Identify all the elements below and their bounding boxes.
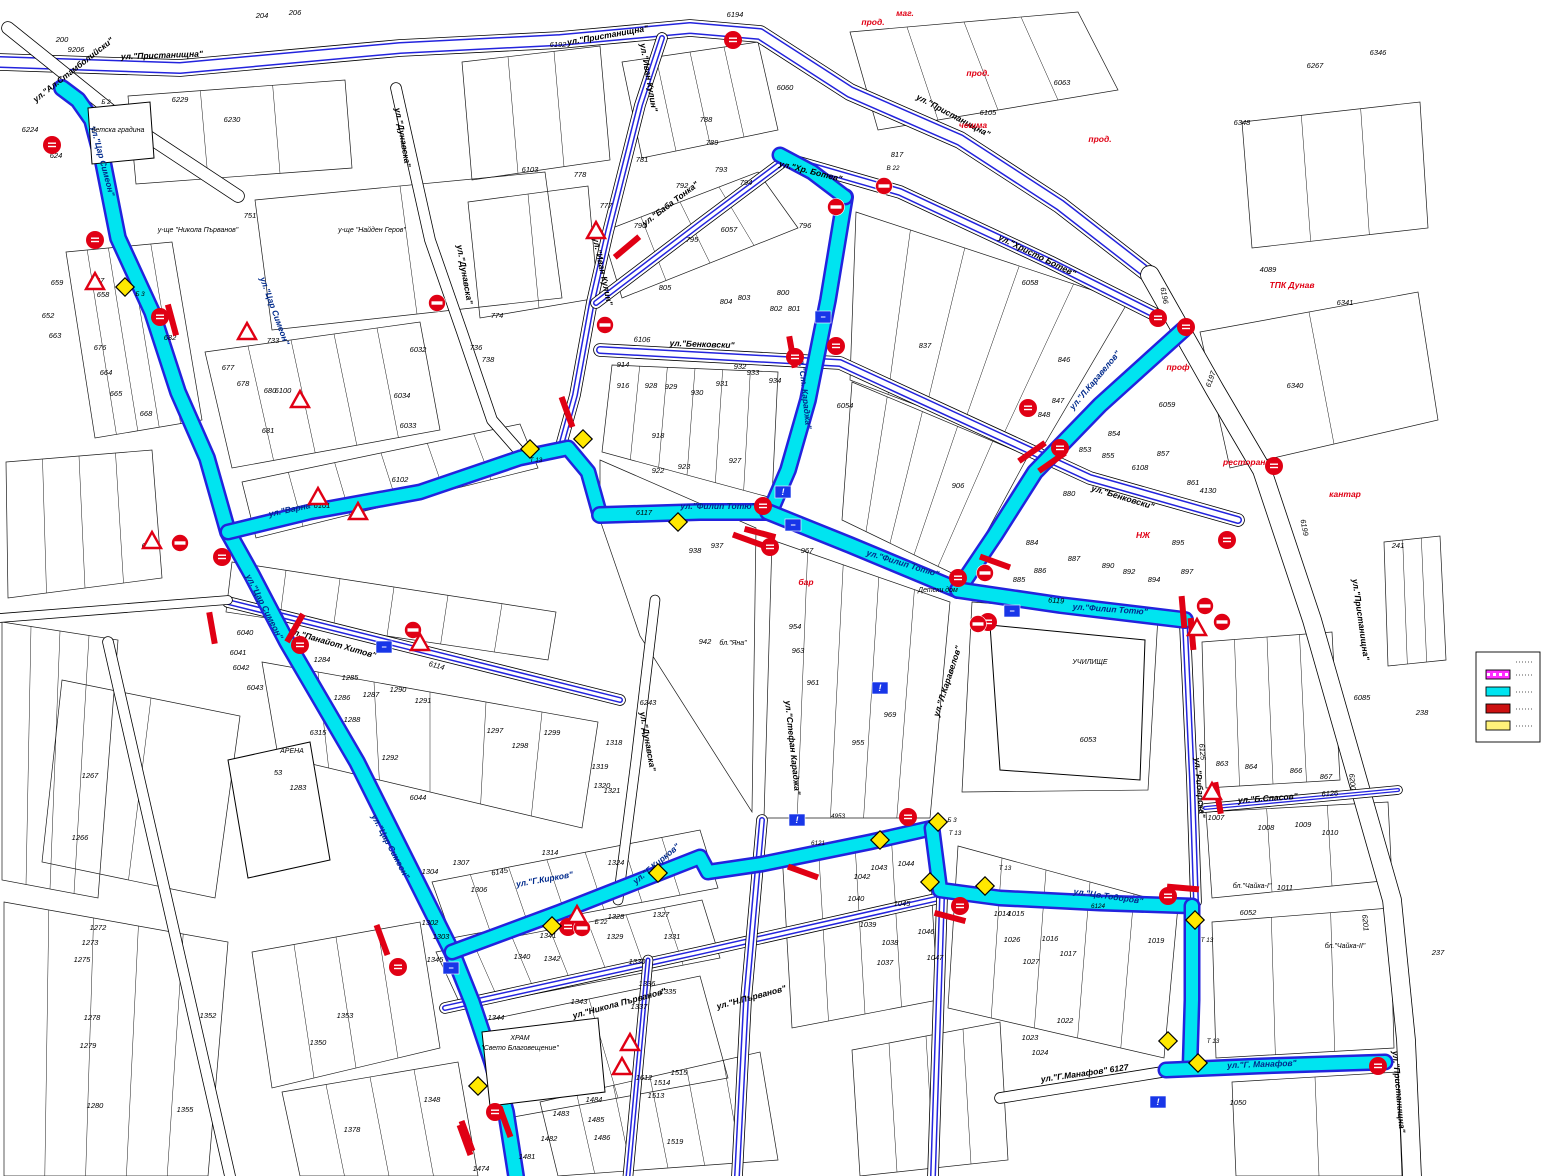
parcel-number: 894 (1148, 575, 1161, 584)
parcel-number: 1026 (1004, 935, 1022, 944)
parcel-number: 942 (699, 637, 712, 646)
parcel-number: 1485 (588, 1115, 606, 1124)
parcel-number: 1519 (667, 1137, 685, 1146)
parcel-number: 6108 (1132, 463, 1150, 472)
parcel-number: 934 (769, 376, 782, 385)
parcel-number: 804 (720, 297, 733, 306)
parcel-number: 817 (891, 150, 904, 159)
red-sign-marker-icon (827, 337, 845, 355)
red-sign-marker-icon (786, 348, 804, 366)
parcel-number: 1513 (648, 1091, 666, 1100)
parcel-number: 1043 (871, 863, 889, 872)
parcel-number: 788 (700, 115, 713, 124)
parcel-number: 736 (470, 343, 483, 352)
parcel-number: 658 (97, 290, 110, 299)
parcel-number: 885 (1013, 575, 1026, 584)
red-sign-marker-icon (291, 636, 309, 654)
parcel-number: 1045 (894, 899, 912, 908)
parcel-number: 6201 (1360, 914, 1370, 931)
parcel-number: 1343 (571, 997, 589, 1006)
route-ul-ribarska-s (1190, 906, 1192, 1066)
parcel-number: 781 (636, 155, 649, 164)
parcel-number: 1297 (487, 726, 505, 735)
annotation-label: бл."Чайка-II" (1325, 942, 1366, 950)
red-sign-marker-icon (1265, 457, 1283, 475)
parcel-number: 6103 (522, 165, 540, 174)
parcel-number: Б 22 (595, 919, 608, 926)
svg-text:−: − (448, 963, 454, 973)
parcel-number: 1329 (607, 932, 625, 941)
parcel-number: 802 (770, 304, 783, 313)
parcel-number: 1022 (1057, 1016, 1075, 1025)
red-sign-marker-icon (151, 308, 169, 326)
parcel-number: 864 (1245, 762, 1258, 771)
parcel-number: 1299 (544, 728, 562, 737)
parcel-number: 855 (1102, 451, 1115, 460)
poi-label: маг. (896, 8, 914, 18)
parcel-number: 1327 (653, 910, 671, 919)
parcel-number: 927 (729, 456, 742, 465)
parcel-number: 1278 (84, 1013, 102, 1022)
red-sign-marker-icon (486, 1103, 504, 1121)
parcel-block (282, 1062, 478, 1176)
parcel-number: 929 (665, 382, 678, 391)
parcel-number: 1318 (606, 738, 624, 747)
parcel-number: 1342 (544, 954, 562, 963)
parcel-number: 847 (1052, 396, 1065, 405)
parcel-number: 774 (491, 311, 504, 320)
parcel-number: 738 (482, 355, 495, 364)
parcel-number: 6033 (400, 421, 418, 430)
parcel-number: 1306 (471, 885, 489, 894)
warning-triangle-icon (587, 222, 605, 238)
parcel-number: 916 (617, 381, 630, 390)
parcel-number: 6043 (247, 683, 265, 692)
parcel-number: 886 (1034, 566, 1047, 575)
parcel-number: 6145 (491, 866, 510, 878)
street-label: ул."Филип Тотю" (679, 501, 756, 511)
parcel-number: 6059 (1159, 400, 1177, 409)
parcel-number: 954 (789, 622, 802, 631)
parcel-number: 803 (738, 293, 751, 302)
parcel-number: 1275 (74, 955, 92, 964)
parcel-number: 4953 (831, 813, 846, 820)
poi-label: кантар (1329, 489, 1361, 499)
parcel-number: 664 (100, 368, 113, 377)
red-sign-marker-icon (1218, 531, 1236, 549)
parcel-number: 6105 (980, 108, 998, 117)
parcel-number: 1324 (608, 858, 625, 867)
annotation-label: "Свето Благовещение" (481, 1045, 559, 1052)
parcel-block (252, 922, 440, 1088)
parcel-block (1242, 102, 1428, 248)
warning-triangle-icon (309, 488, 327, 504)
parcel-number: 1348 (424, 1095, 442, 1104)
parcel-number: Т 13 (949, 830, 962, 837)
parcel-number: 928 (645, 381, 658, 390)
parcel-number: 241 (1391, 541, 1405, 550)
parcel-number: 4130 (1200, 486, 1218, 495)
parcel-number: 1011 (1277, 883, 1293, 892)
parcel-number: 1331 (664, 932, 681, 941)
poi-label: прод. (1088, 134, 1111, 144)
parcel-number: 6126 (1321, 788, 1339, 798)
parcel-number: 6040 (237, 628, 255, 637)
parcel-number: 1273 (82, 938, 100, 947)
svg-text:−: − (820, 312, 826, 322)
parcel-number: 659 (51, 278, 64, 287)
parcel-number: 796 (799, 221, 812, 230)
svg-text:!: ! (782, 487, 785, 497)
road-closure-bar (613, 234, 641, 259)
annotation-label: у-ще "Никола Първанов" (157, 227, 239, 234)
parcel-number: Б 3 (947, 817, 957, 824)
parcel-block (462, 46, 610, 180)
priority-diamond-icon (469, 1077, 487, 1095)
red-sign-marker-icon (1051, 439, 1069, 457)
red-sign-marker-icon (951, 897, 969, 915)
svg-text:!: ! (796, 815, 799, 825)
parcel-number: 955 (852, 738, 865, 747)
parcel-number: 1321 (604, 786, 621, 795)
parcel-number: 854 (1108, 429, 1121, 438)
parcel-number: 663 (49, 331, 62, 340)
parcel-number: 6044 (410, 793, 427, 802)
parcel-number: 1337 (631, 1002, 649, 1011)
parcel-number: 1474 (473, 1164, 490, 1173)
parcel-number: 1304 (422, 867, 439, 876)
parcel-number: 923 (678, 462, 691, 471)
parcel-number: 1481 (519, 1152, 536, 1161)
parcel-number: 795 (686, 235, 699, 244)
poi-label: ТПК Дунав (1270, 280, 1315, 290)
parcel-number: 6194 (727, 10, 744, 19)
parcel-number: 1355 (177, 1105, 195, 1114)
parcel-number: 1284 (314, 655, 331, 664)
parcel-number: 880 (1063, 489, 1076, 498)
parcel-number: 794 (740, 178, 753, 187)
parcel-number: 1314 (542, 848, 559, 857)
parcel-number: 846 (1058, 355, 1071, 364)
legend-swatch-cyan (1486, 687, 1510, 696)
red-sign-marker-icon (724, 31, 742, 49)
street-label: ул."Дунавска" (455, 243, 476, 306)
poi-label: чешма (959, 120, 988, 130)
warning-triangle-icon (291, 391, 309, 407)
parcel-number: 930 (691, 388, 704, 397)
parcel-number: 6230 (224, 115, 242, 124)
parcel-number: 777 (600, 201, 613, 210)
annotation-label: ХРАМ (509, 1035, 529, 1042)
parcel-number: 678 (237, 379, 250, 388)
parcel-number: 1266 (72, 833, 90, 842)
red-sign-marker-icon (1159, 887, 1177, 905)
red-sign-marker-icon (1149, 309, 1167, 327)
parcel-number: 1019 (1148, 936, 1166, 945)
svg-text:−: − (1009, 606, 1015, 616)
legend (1476, 652, 1540, 742)
parcel-number: 933 (747, 368, 760, 377)
parcel-number: 6032 (410, 345, 428, 354)
parcel-number: 6340 (1287, 381, 1305, 390)
parcel-number: 1319 (592, 762, 610, 771)
parcel-number: 931 (716, 379, 729, 388)
svg-text:!: ! (1157, 1097, 1160, 1107)
parcel-number: 789 (706, 138, 719, 147)
parcel-number: 6052 (1240, 908, 1258, 917)
parcel-number: 1292 (382, 753, 400, 762)
parcel-number: 204 (255, 11, 269, 20)
parcel-number: 1345 (427, 955, 445, 964)
legend-swatch-yellow (1486, 721, 1510, 730)
parcel-number: 6058 (1022, 278, 1040, 287)
parcel-number: 1279 (80, 1041, 98, 1050)
parcel-number: 961 (807, 678, 820, 687)
parcel-number: 6085 (1354, 693, 1372, 702)
parcel-number: 1486 (594, 1133, 612, 1142)
parcel-number: 1328 (608, 912, 626, 921)
annotation-label: у-ще "Найден Геров" (337, 226, 406, 234)
parcel-number: 884 (1026, 538, 1039, 547)
poi-label: НЖ (1136, 530, 1151, 540)
parcel-number: 1484 (586, 1095, 603, 1104)
parcel-number: 751 (244, 211, 257, 220)
parcel-number: 6267 (1307, 61, 1325, 70)
parcel-number: 1008 (1258, 823, 1276, 832)
parcel-number: 1515 (671, 1068, 689, 1077)
parcel-number: 665 (110, 389, 123, 398)
parcel-number: 1010 (1322, 828, 1340, 837)
parcel-number: 1285 (342, 673, 360, 682)
parcel-number: 1038 (882, 938, 900, 947)
parcel-number: 848 (1038, 410, 1051, 419)
street-label: ул."Баба Тонка" (639, 179, 701, 229)
parcel-number: 1044 (898, 859, 915, 868)
parcel-number: 1046 (918, 927, 936, 936)
parcel-number: 1307 (453, 858, 471, 867)
red-sign-marker-icon (1369, 1057, 1387, 1075)
parcel-number: 863 (1216, 759, 1229, 768)
parcel-number: 1514 (654, 1078, 671, 1087)
parcel-block (128, 80, 352, 184)
parcel-number: 1290 (390, 685, 408, 694)
parcel-number: 1483 (553, 1109, 571, 1118)
street-label: ул."Пристанищна" (1350, 577, 1372, 662)
warning-triangle-icon (613, 1058, 631, 1074)
parcel-number: 918 (652, 431, 665, 440)
parcel-number: 668 (140, 409, 153, 418)
parcel-number: 6057 (721, 225, 739, 234)
parcel-number: 676 (94, 343, 107, 352)
parcel-number: 6102 (392, 475, 410, 484)
parcel-number: 1302 (422, 918, 440, 927)
parcel-number: 1612 (636, 1073, 654, 1082)
parcel-number: 6042 (233, 663, 251, 672)
annotation-label: УЧИЛИЩЕ (1071, 659, 1107, 666)
parcel-number: Т 13 (1207, 1038, 1220, 1045)
svg-text:−: − (790, 520, 796, 530)
parcel-number: 6117 (636, 508, 653, 517)
svg-text:!: ! (879, 683, 882, 693)
parcel-number: 1350 (310, 1038, 328, 1047)
red-sign-marker-icon (43, 136, 61, 154)
annotation-label: бл."Яна" (719, 639, 747, 647)
parcel-number: 6053 (1080, 735, 1098, 744)
parcel-number: 1007 (1208, 813, 1226, 822)
parcel-number: 6200 (1347, 773, 1357, 791)
parcel-number: 1280 (87, 1101, 105, 1110)
parcel-number: 853 (1079, 445, 1092, 454)
parcel-number: 6060 (777, 83, 795, 92)
building-outline (990, 625, 1145, 780)
parcel-number: 1303 (433, 932, 451, 941)
parcel-number: 238 (1415, 708, 1429, 717)
parcel-number: 801 (788, 304, 801, 313)
parcel-number: 1330 (629, 957, 647, 966)
parcel-number: 6034 (394, 391, 411, 400)
red-sign-marker-icon (213, 548, 231, 566)
red-sign-marker-icon (761, 538, 779, 556)
parcel-number: 1482 (541, 1134, 559, 1143)
svg-text:−: − (381, 642, 387, 652)
parcel-number: 914 (617, 360, 630, 369)
street-label: ул."Л.Каравелов" (931, 644, 964, 719)
street-label: ул."Г.Кирков" (514, 869, 575, 889)
parcel-number: 1267 (82, 771, 100, 780)
parcel-number: 6041 (230, 648, 247, 657)
parcel-number: 906 (952, 481, 965, 490)
parcel-number: 805 (659, 283, 672, 292)
red-sign-marker-icon (754, 497, 772, 515)
parcel-number: 6054 (837, 401, 854, 410)
annotation-label: детска градина (92, 126, 145, 134)
parcel-number: 200 (55, 35, 69, 44)
parcel-number: 1272 (90, 923, 108, 932)
parcel-number: 6124 (1091, 903, 1106, 910)
poi-label: проф (1166, 362, 1190, 372)
red-sign-marker-icon (949, 569, 967, 587)
parcel-block (1384, 536, 1446, 666)
parcel-number: 1024 (1032, 1048, 1049, 1057)
parcel-number: 237 (1431, 948, 1445, 957)
route-ul-filip-totyu-w (600, 512, 768, 515)
parcel-number: В 22 (887, 165, 900, 172)
parcel-number: 922 (652, 466, 665, 475)
parcel-number: 1039 (860, 920, 878, 929)
parcel-number: 1287 (363, 690, 381, 699)
annotation-label: Детски дом (917, 586, 958, 594)
parcel-number: 1283 (290, 783, 308, 792)
parcel-number: 897 (1181, 567, 1194, 576)
parcel-block (6, 450, 162, 598)
parcel-number: 652 (42, 311, 55, 320)
parcel-number: 793 (715, 165, 728, 174)
parcel-number: 857 (1157, 449, 1170, 458)
parcel-number: 1047 (927, 953, 945, 962)
poi-label: бар (798, 577, 813, 587)
parcel-number: 206 (288, 8, 302, 17)
parcel-number: 681 (262, 426, 275, 435)
parcel-number: 778 (574, 170, 587, 179)
priority-diamond-icon (1159, 1032, 1177, 1050)
parcel-number: 1352 (200, 1011, 218, 1020)
parcel-number: 6315 (310, 728, 328, 737)
parcel-number: Т 13 (1201, 937, 1214, 944)
map-labels: ул."Ал.Стамболийски"ул."Пристанищна"ул."… (22, 8, 1445, 1173)
parcel-number: 1009 (1295, 820, 1313, 829)
parcel-number: 6192 (550, 40, 568, 49)
parcel-number: 1288 (344, 715, 362, 724)
red-sign-marker-icon (389, 958, 407, 976)
parcel-number: 938 (689, 546, 702, 555)
warning-triangle-icon (238, 323, 256, 339)
parcel-number: 963 (792, 646, 805, 655)
parcel-number: 969 (884, 710, 897, 719)
road-closure-bar (206, 612, 217, 645)
parcel-block (2, 622, 118, 898)
parcel-number: 6346 (1370, 48, 1388, 57)
parcel-number: 1040 (848, 894, 866, 903)
parcel-number: 6100 (275, 386, 293, 395)
parcel-number: 892 (1123, 567, 1136, 576)
parcel-number: 1042 (854, 872, 872, 881)
cadastral-map: ул."Ал.Стамболийски"ул."Пристанищна"ул."… (0, 0, 1541, 1176)
route-ul-l-karavelov (958, 330, 1183, 590)
parcel-number: 861 (1187, 478, 1200, 487)
parcel-number: 6224 (22, 125, 39, 134)
parcel-block (468, 186, 598, 318)
parcel-number: 6063 (1054, 78, 1072, 87)
parcel-number: 1286 (334, 693, 352, 702)
red-sign-marker-icon (1177, 318, 1195, 336)
parcel-number: 792 (676, 181, 689, 190)
parcel-number: 1340 (514, 952, 532, 961)
parcel-number: Т 13 (999, 865, 1012, 872)
parcel-number: 800 (777, 288, 790, 297)
parcel-number: 1027 (1023, 957, 1041, 966)
parcel-number: 790 (634, 221, 647, 230)
parcel-number: Б 3 (135, 291, 145, 298)
parcel-number: 1336 (639, 979, 657, 988)
parcel-number: 837 (919, 341, 932, 350)
parcel-number: 895 (1172, 538, 1185, 547)
parcel-number: 1016 (1042, 934, 1060, 943)
legend-swatch-red (1486, 704, 1510, 713)
parcel-number: 6341 (1337, 298, 1354, 307)
parcel-number: 890 (1102, 561, 1115, 570)
parcel-number: 53 (274, 768, 283, 777)
parcel-number: 1353 (337, 1011, 355, 1020)
parcel-number: 1335 (660, 987, 678, 996)
parcel-number: 1017 (1060, 949, 1078, 958)
parcel-number: 887 (1068, 554, 1081, 563)
parcel-number: 4089 (1260, 265, 1278, 274)
parcel-number: 1050 (1230, 1098, 1248, 1107)
parcel-number: 1023 (1022, 1033, 1040, 1042)
parcel-number: 967 (801, 546, 814, 555)
parcel-number: 1298 (512, 741, 530, 750)
parcel-number: Т 13 (530, 457, 543, 464)
parcel-number: 6121 (811, 840, 825, 847)
red-sign-marker-icon (899, 808, 917, 826)
parcel-number: 1291 (415, 696, 432, 705)
parcel-number: 1344 (488, 1013, 505, 1022)
annotation-label: АРЕНА (279, 748, 304, 755)
parcel-number: 866 (1290, 766, 1303, 775)
road-closure-bar (787, 864, 819, 881)
red-sign-marker-icon (86, 231, 104, 249)
parcel-number: 932 (734, 362, 747, 371)
